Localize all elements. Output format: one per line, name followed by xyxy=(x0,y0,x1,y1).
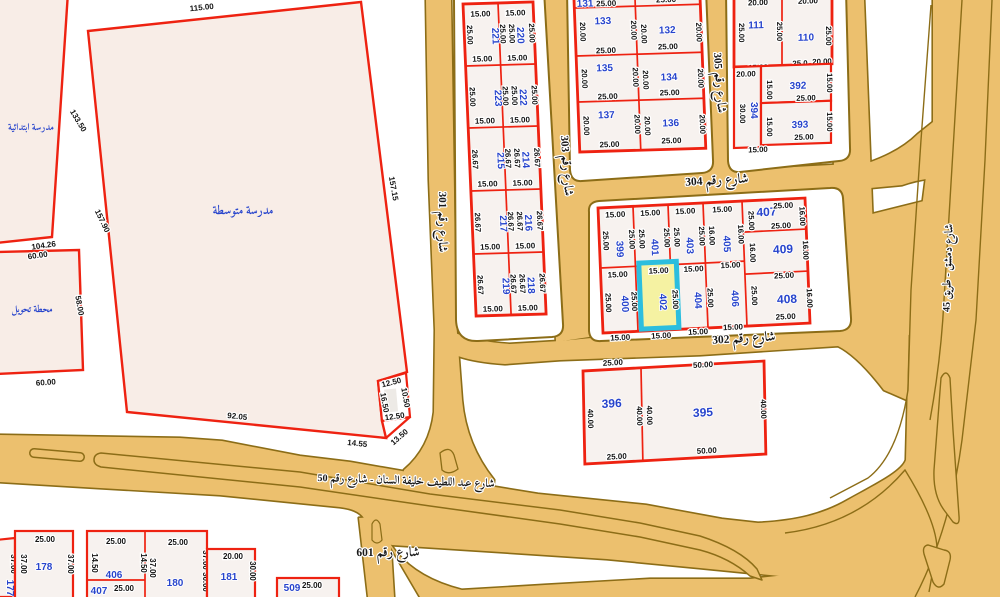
svg-text:405: 405 xyxy=(720,235,732,253)
svg-text:15.00: 15.00 xyxy=(483,304,504,314)
svg-text:15.00: 15.00 xyxy=(477,179,498,189)
svg-text:396: 396 xyxy=(602,396,623,411)
svg-text:177: 177 xyxy=(4,580,15,597)
svg-text:26.67: 26.67 xyxy=(515,211,525,231)
svg-text:135: 135 xyxy=(596,63,614,75)
svg-text:20.00: 20.00 xyxy=(580,69,590,89)
svg-text:15.00: 15.00 xyxy=(470,9,491,19)
svg-text:40.00: 40.00 xyxy=(645,405,654,426)
svg-text:25.00: 25.00 xyxy=(659,88,680,98)
svg-text:137: 137 xyxy=(598,110,616,122)
svg-text:20.00: 20.00 xyxy=(578,22,588,42)
svg-text:25.00: 25.00 xyxy=(771,221,792,231)
svg-text:15.00: 15.00 xyxy=(518,303,539,313)
svg-text:395: 395 xyxy=(693,405,714,420)
svg-text:25.00: 25.00 xyxy=(774,271,795,281)
svg-text:408: 408 xyxy=(777,292,798,307)
svg-text:26.67: 26.67 xyxy=(512,148,522,168)
svg-text:20.00: 20.00 xyxy=(748,0,769,8)
svg-text:16.00: 16.00 xyxy=(736,224,746,245)
svg-text:134: 134 xyxy=(661,72,679,84)
svg-text:25.00: 25.00 xyxy=(603,293,613,314)
svg-text:25.00: 25.00 xyxy=(302,581,323,590)
svg-text:25.00: 25.00 xyxy=(670,290,680,311)
svg-text:15.00: 15.00 xyxy=(505,8,526,18)
svg-text:15.00: 15.00 xyxy=(825,73,834,93)
svg-text:111: 111 xyxy=(748,20,764,32)
svg-text:26.67: 26.67 xyxy=(537,273,547,293)
svg-text:16.00: 16.00 xyxy=(707,226,717,247)
svg-text:400: 400 xyxy=(619,295,631,313)
svg-text:25.00: 25.00 xyxy=(773,201,794,211)
svg-text:26.67: 26.67 xyxy=(473,212,483,232)
svg-text:15.00: 15.00 xyxy=(512,178,533,188)
svg-text:392: 392 xyxy=(790,81,807,93)
svg-text:136: 136 xyxy=(662,118,680,130)
svg-text:25.00: 25.00 xyxy=(775,22,784,42)
svg-text:15.00: 15.00 xyxy=(640,208,661,218)
svg-text:25.00: 25.00 xyxy=(794,132,814,142)
svg-text:25.00: 25.00 xyxy=(661,136,682,146)
svg-text:25.00: 25.00 xyxy=(749,286,759,307)
svg-text:25.00: 25.00 xyxy=(627,229,637,250)
svg-text:15.00: 15.00 xyxy=(480,242,501,252)
svg-text:178: 178 xyxy=(36,562,53,573)
svg-text:403: 403 xyxy=(683,237,695,255)
svg-text:181: 181 xyxy=(221,572,238,583)
svg-text:50.00: 50.00 xyxy=(693,360,714,370)
svg-text:25.00: 25.00 xyxy=(527,23,537,43)
svg-text:50.00: 50.00 xyxy=(697,446,718,456)
svg-text:20.00: 20.00 xyxy=(639,24,649,44)
svg-text:15.00: 15.00 xyxy=(507,53,528,63)
svg-text:15.00: 15.00 xyxy=(720,260,741,270)
svg-text:20.00: 20.00 xyxy=(641,70,651,90)
svg-text:15.00: 15.00 xyxy=(765,80,774,100)
svg-text:15.00: 15.00 xyxy=(825,112,834,132)
svg-text:25.00: 25.00 xyxy=(35,535,56,544)
svg-text:14.50: 14.50 xyxy=(90,553,99,573)
svg-text:15.00: 15.00 xyxy=(510,115,531,125)
svg-text:25.00: 25.00 xyxy=(507,24,517,44)
svg-text:20.00: 20.00 xyxy=(223,552,244,561)
svg-text:26.67: 26.67 xyxy=(470,149,480,169)
svg-text:15.00: 15.00 xyxy=(475,116,496,126)
svg-text:15.00: 15.00 xyxy=(608,270,629,280)
svg-text:25.00: 25.00 xyxy=(596,46,617,56)
svg-text:25.00: 25.00 xyxy=(114,584,135,593)
svg-text:20.00: 20.00 xyxy=(798,0,819,6)
svg-text:26.67: 26.67 xyxy=(503,149,513,169)
svg-text:25.00: 25.00 xyxy=(106,537,127,546)
svg-text:394: 394 xyxy=(748,102,759,119)
svg-text:110: 110 xyxy=(798,32,815,44)
svg-text:409: 409 xyxy=(773,242,794,257)
svg-text:25.00: 25.00 xyxy=(603,358,624,368)
svg-text:37.00: 37.00 xyxy=(148,558,157,578)
svg-text:25.00: 25.00 xyxy=(672,227,682,248)
svg-text:26.67: 26.67 xyxy=(517,274,527,294)
svg-text:15.00: 15.00 xyxy=(748,145,768,155)
svg-text:406: 406 xyxy=(106,570,123,581)
svg-text:180: 180 xyxy=(167,578,184,589)
svg-text:37.00: 37.00 xyxy=(19,554,28,574)
svg-text:133: 133 xyxy=(594,16,612,28)
svg-text:25.00: 25.00 xyxy=(601,231,611,252)
svg-text:16.00: 16.00 xyxy=(748,243,758,264)
svg-text:20.00: 20.00 xyxy=(696,68,706,88)
svg-text:26.67: 26.67 xyxy=(508,274,518,294)
svg-text:25.00: 25.00 xyxy=(637,229,647,250)
svg-text:15.00: 15.00 xyxy=(675,206,696,216)
svg-text:16.00: 16.00 xyxy=(797,206,807,227)
svg-text:15.00: 15.00 xyxy=(472,54,493,64)
svg-text:407: 407 xyxy=(91,586,108,597)
svg-text:15.00: 15.00 xyxy=(610,333,631,343)
svg-text:25.00: 25.00 xyxy=(705,288,715,309)
svg-text:20.00: 20.00 xyxy=(632,114,642,134)
svg-text:25.00: 25.00 xyxy=(746,211,756,232)
svg-text:26.67: 26.67 xyxy=(475,275,485,295)
svg-text:25.00: 25.00 xyxy=(465,25,475,45)
svg-text:15.00: 15.00 xyxy=(765,117,774,137)
svg-text:30.00: 30.00 xyxy=(738,104,747,124)
svg-text:404: 404 xyxy=(692,292,704,310)
svg-text:15.00: 15.00 xyxy=(688,327,709,337)
svg-text:15.00: 15.00 xyxy=(515,241,536,251)
svg-text:20.00: 20.00 xyxy=(697,114,707,134)
svg-text:402: 402 xyxy=(657,293,669,311)
svg-text:40.00: 40.00 xyxy=(586,409,595,430)
svg-text:25.00: 25.00 xyxy=(607,452,628,462)
svg-text:25.00: 25.00 xyxy=(529,85,539,105)
svg-text:393: 393 xyxy=(792,120,809,132)
svg-text:25.00: 25.00 xyxy=(656,0,677,5)
svg-text:40.00: 40.00 xyxy=(635,406,644,427)
svg-text:20.00: 20.00 xyxy=(581,116,591,136)
svg-text:15.00: 15.00 xyxy=(648,266,669,276)
svg-text:132: 132 xyxy=(659,25,677,37)
svg-text:40.00: 40.00 xyxy=(759,399,768,420)
svg-text:16.00: 16.00 xyxy=(805,288,815,309)
svg-text:25.00: 25.00 xyxy=(498,24,508,44)
svg-text:15.00: 15.00 xyxy=(723,322,744,332)
svg-text:509: 509 xyxy=(284,583,301,594)
svg-text:25.00: 25.00 xyxy=(776,312,797,322)
svg-text:399: 399 xyxy=(613,240,625,258)
svg-text:15.00: 15.00 xyxy=(683,264,704,274)
svg-text:15.00: 15.00 xyxy=(651,331,672,341)
svg-text:25.00: 25.00 xyxy=(662,228,672,249)
svg-text:26.67: 26.67 xyxy=(506,212,516,232)
svg-text:25.00: 25.00 xyxy=(500,86,510,106)
svg-text:401: 401 xyxy=(648,239,660,257)
svg-text:25.00: 25.00 xyxy=(598,92,619,102)
svg-text:20.00: 20.00 xyxy=(694,22,704,42)
svg-text:131: 131 xyxy=(577,0,595,10)
svg-text:14.50: 14.50 xyxy=(139,553,148,573)
svg-text:16.00: 16.00 xyxy=(801,240,811,261)
svg-text:20.00: 20.00 xyxy=(629,20,639,40)
svg-text:25.00: 25.00 xyxy=(467,87,477,107)
svg-text:25.00: 25.00 xyxy=(599,140,620,150)
svg-text:30.00: 30.00 xyxy=(248,561,257,581)
svg-text:26.67: 26.67 xyxy=(535,211,545,231)
svg-text:25.00: 25.00 xyxy=(824,26,833,46)
svg-text:25.00: 25.00 xyxy=(697,226,707,247)
svg-text:25.00: 25.00 xyxy=(658,42,679,52)
svg-text:26.67: 26.67 xyxy=(532,148,542,168)
svg-text:25.00: 25.00 xyxy=(796,93,816,103)
svg-text:25.00: 25.00 xyxy=(596,0,617,8)
svg-text:20.00: 20.00 xyxy=(631,67,641,87)
svg-text:25.00: 25.00 xyxy=(168,538,189,547)
svg-text:25.00: 25.00 xyxy=(509,86,519,106)
svg-text:25.00: 25.00 xyxy=(737,23,746,43)
svg-text:15.00: 15.00 xyxy=(712,205,733,215)
svg-text:60.00: 60.00 xyxy=(36,377,57,387)
svg-text:37.00: 37.00 xyxy=(66,554,75,574)
svg-text:20.00: 20.00 xyxy=(642,116,652,136)
svg-text:20.00: 20.00 xyxy=(736,69,756,79)
svg-text:406: 406 xyxy=(729,290,741,308)
svg-text:15.00: 15.00 xyxy=(605,210,626,220)
